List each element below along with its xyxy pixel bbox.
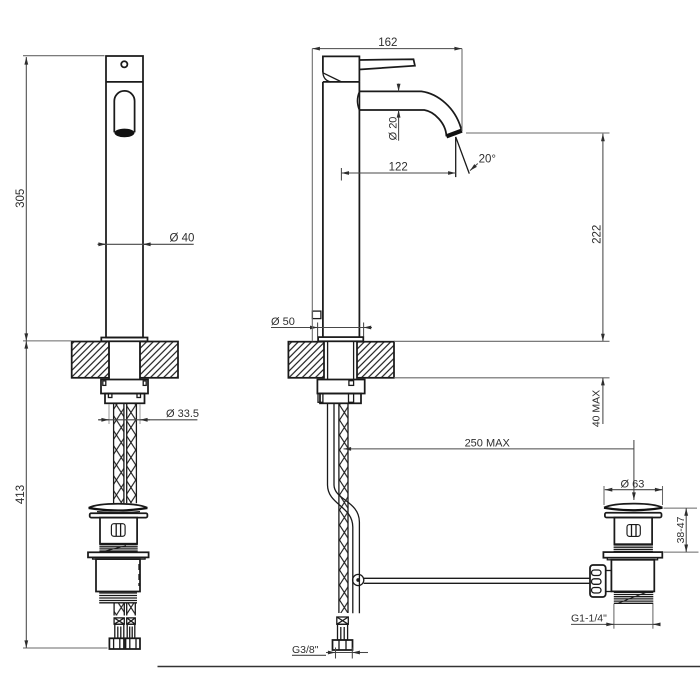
svg-text:162: 162 (378, 37, 397, 49)
svg-text:G3/8": G3/8" (292, 644, 319, 656)
svg-text:122: 122 (389, 161, 408, 173)
svg-text:305: 305 (15, 189, 27, 208)
svg-text:Ø 33.5: Ø 33.5 (166, 408, 199, 420)
svg-text:20°: 20° (479, 154, 496, 166)
svg-text:Ø 63: Ø 63 (621, 478, 645, 490)
svg-text:38-47: 38-47 (675, 516, 687, 543)
svg-text:413: 413 (15, 485, 27, 504)
svg-text:250 MAX: 250 MAX (465, 437, 511, 449)
svg-text:Ø 20: Ø 20 (387, 117, 399, 141)
svg-text:Ø 40: Ø 40 (170, 233, 195, 245)
svg-text:G1-1/4": G1-1/4" (571, 613, 607, 625)
svg-text:40 MAX: 40 MAX (591, 390, 603, 427)
svg-text:Ø 50: Ø 50 (271, 316, 295, 328)
svg-text:222: 222 (592, 225, 604, 244)
